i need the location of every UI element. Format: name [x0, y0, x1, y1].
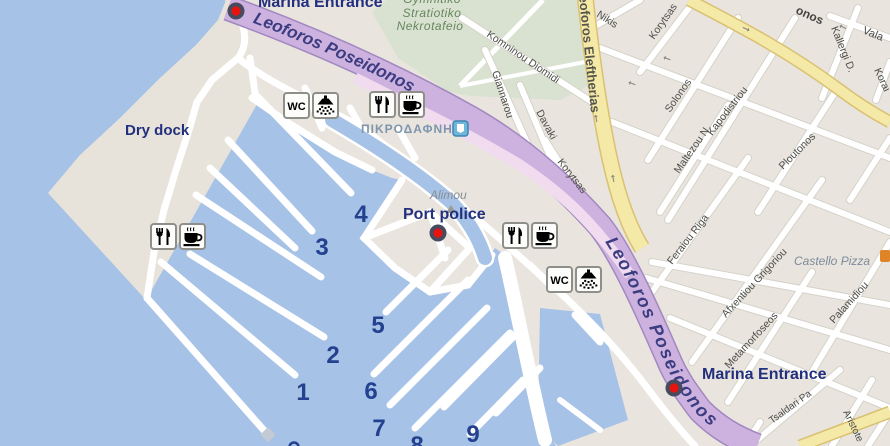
svg-text:Marina Entrance: Marina Entrance: [702, 366, 827, 383]
svg-text:Castello Pizza: Castello Pizza: [794, 254, 870, 268]
svg-text:Nekrotafeio: Nekrotafeio: [397, 19, 464, 33]
svg-text:7: 7: [372, 415, 385, 442]
svg-text:Dry dock: Dry dock: [125, 122, 190, 139]
svg-text:4: 4: [354, 201, 368, 228]
svg-text:6: 6: [364, 378, 377, 405]
svg-text:9: 9: [466, 421, 479, 446]
svg-text:1: 1: [296, 379, 309, 406]
svg-text:Marina Entrance: Marina Entrance: [258, 0, 383, 11]
svg-text:2: 2: [326, 342, 339, 369]
svg-text:8: 8: [410, 432, 423, 446]
svg-text:5: 5: [371, 312, 384, 339]
svg-text:Port police: Port police: [403, 206, 486, 223]
svg-text:ΠΙΚΡΟΔΑΦΝΗ: ΠΙΚΡΟΔΑΦΝΗ: [361, 122, 453, 136]
svg-text:Alimou: Alimou: [429, 188, 467, 202]
svg-text:3: 3: [315, 234, 328, 261]
svg-text:WC: WC: [550, 275, 568, 287]
svg-text:WC: WC: [287, 101, 305, 113]
svg-text:Stratiotiko: Stratiotiko: [403, 6, 462, 20]
